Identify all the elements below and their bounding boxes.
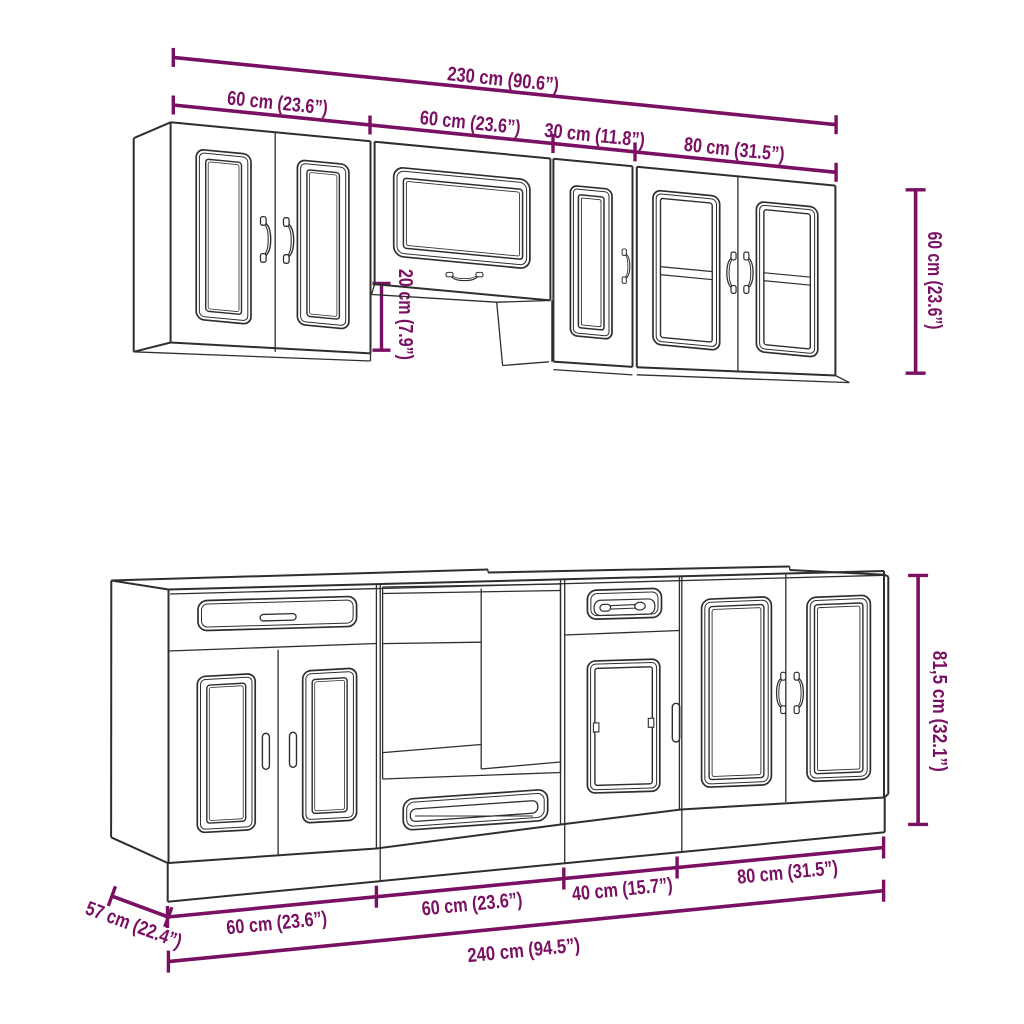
svg-text:40 cm (15.7”): 40 cm (15.7”) <box>571 874 674 906</box>
svg-text:60 cm (23.6”): 60 cm (23.6”) <box>923 232 945 330</box>
svg-text:20 cm (7.9”): 20 cm (7.9”) <box>394 269 416 360</box>
svg-text:240 cm (94.5”): 240 cm (94.5”) <box>466 934 581 967</box>
svg-text:60 cm (23.6”): 60 cm (23.6”) <box>225 908 328 940</box>
svg-text:60 cm (23.6”): 60 cm (23.6”) <box>421 889 524 921</box>
svg-text:81,5 cm (32.1”): 81,5 cm (32.1”) <box>928 651 950 772</box>
